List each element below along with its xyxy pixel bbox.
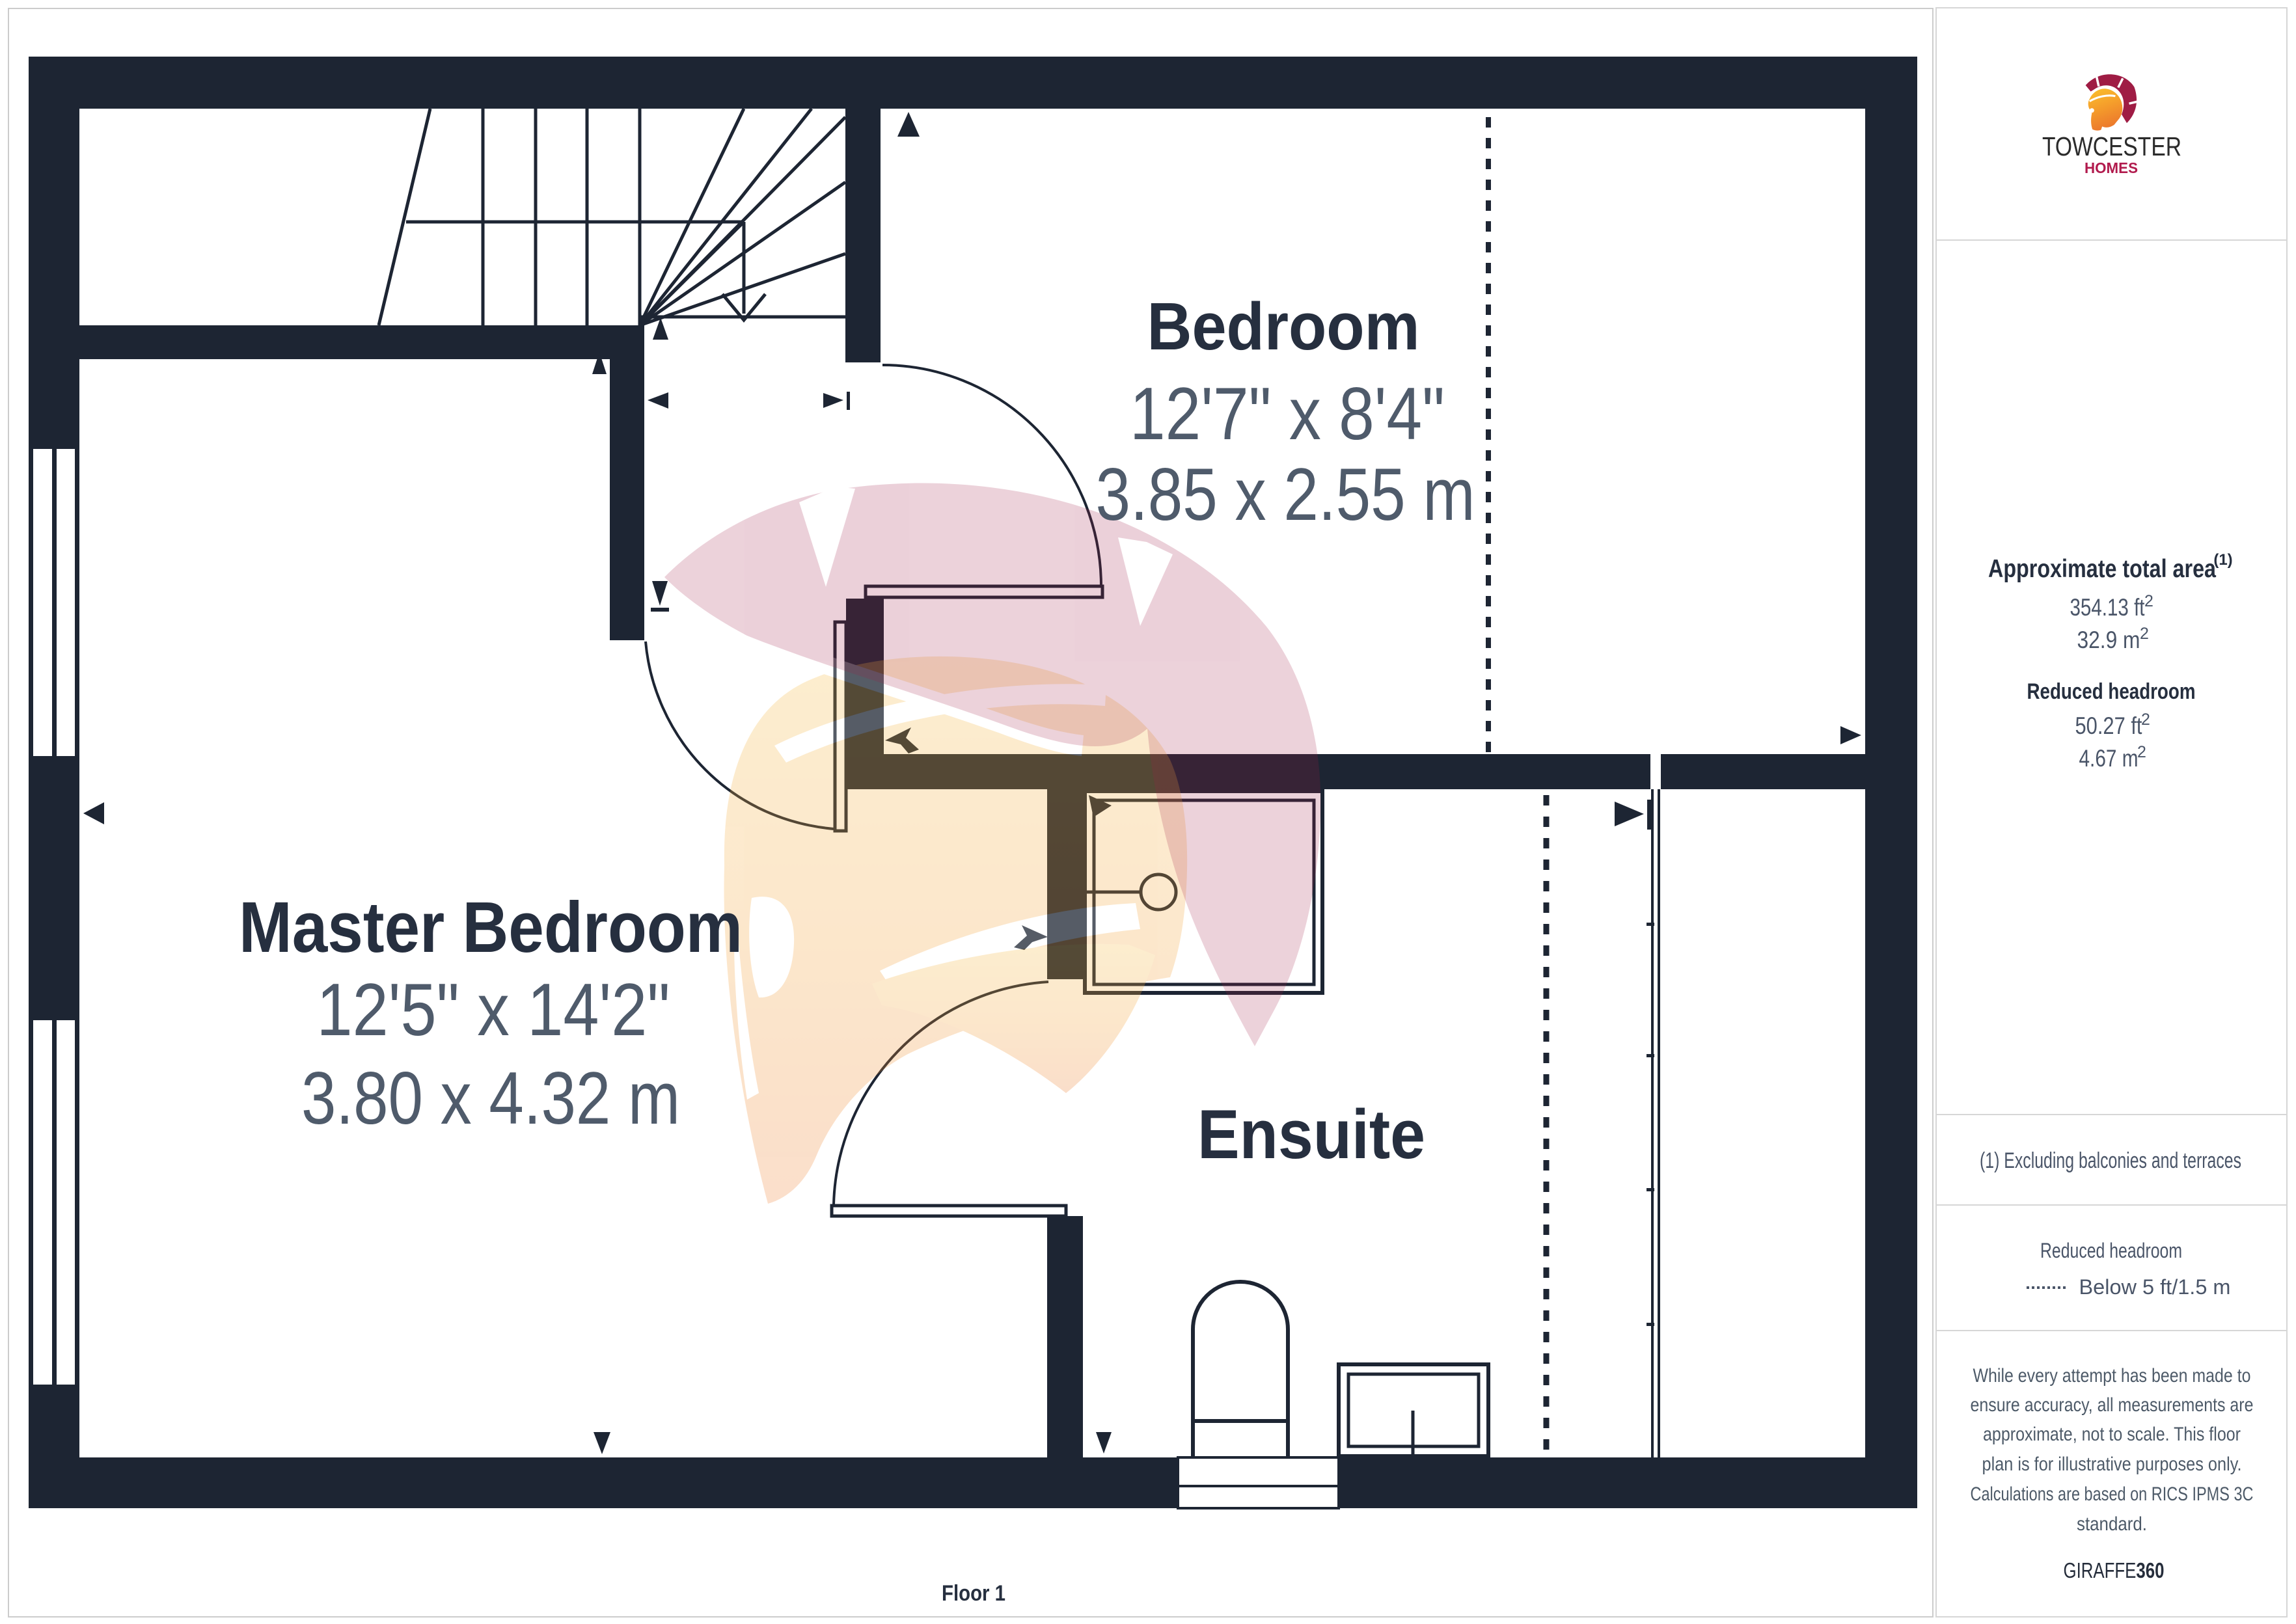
svg-text:ensure accuracy, all measureme: ensure accuracy, all measurements are [1971, 1394, 2254, 1416]
svg-text:(1) Excluding balconies and te: (1) Excluding balconies and terraces [1980, 1148, 2241, 1173]
svg-text:While every attempt has been m: While every attempt has been made to [1973, 1365, 2251, 1387]
svg-text:4.67 m: 4.67 m [2079, 745, 2139, 772]
svg-text:GIRAFFE360: GIRAFFE360 [2064, 1558, 2165, 1582]
svg-text:3.85 x 2.55 m: 3.85 x 2.55 m [1096, 453, 1475, 536]
svg-text:Approximate total area: Approximate total area [1988, 555, 2216, 583]
svg-text:Below 5 ft/1.5 m: Below 5 ft/1.5 m [2079, 1275, 2231, 1299]
svg-text:Floor 1: Floor 1 [942, 1581, 1005, 1606]
svg-text:Calculations are based on RICS: Calculations are based on RICS IPMS 3C [1971, 1483, 2254, 1505]
svg-text:12'7" x 8'4": 12'7" x 8'4" [1130, 373, 1445, 455]
svg-text:2: 2 [2137, 743, 2146, 761]
svg-text:50.27 ft: 50.27 ft [2075, 712, 2143, 739]
svg-text:2: 2 [2144, 592, 2153, 610]
svg-text:Bedroom: Bedroom [1147, 289, 1420, 364]
svg-text:Ensuite: Ensuite [1197, 1095, 1425, 1173]
svg-text:2: 2 [2141, 710, 2150, 729]
svg-text:12'5" x 14'2": 12'5" x 14'2" [317, 969, 670, 1051]
svg-text:3.80 x 4.32 m: 3.80 x 4.32 m [301, 1057, 680, 1140]
svg-text:Reduced headroom: Reduced headroom [2040, 1239, 2182, 1262]
svg-text:(1): (1) [2213, 551, 2232, 569]
svg-text:standard.: standard. [2077, 1513, 2147, 1535]
svg-text:HOMES: HOMES [2084, 159, 2138, 176]
svg-text:Master Bedroom: Master Bedroom [239, 887, 743, 968]
svg-text:plan is for illustrative purpo: plan is for illustrative purposes only. [1982, 1454, 2242, 1475]
svg-text:approximate, not to scale. Thi: approximate, not to scale. This floor [1983, 1424, 2241, 1445]
svg-text:TOWCESTER: TOWCESTER [2042, 131, 2181, 161]
svg-text:32.9 m: 32.9 m [2077, 627, 2140, 653]
svg-text:354.13 ft: 354.13 ft [2070, 594, 2146, 621]
svg-text:2: 2 [2140, 625, 2149, 643]
svg-text:Reduced headroom: Reduced headroom [2027, 679, 2196, 704]
